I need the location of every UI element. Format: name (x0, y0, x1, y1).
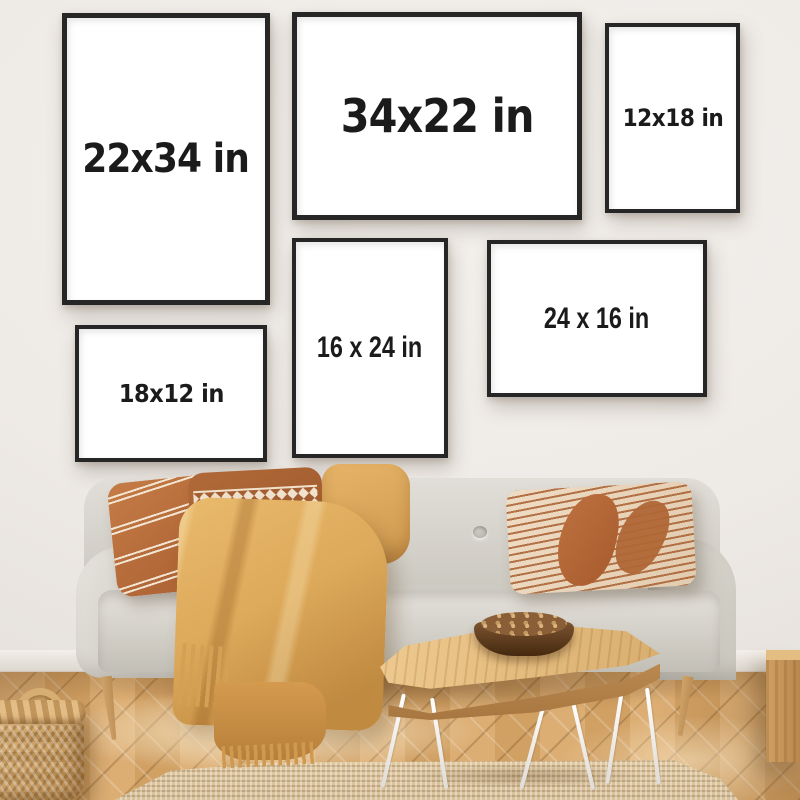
frame-size-label: 34x22 in (341, 89, 534, 143)
frame-16x24: 16 x 24 in (292, 238, 448, 458)
pillow-leaf-motif (552, 488, 625, 591)
basket-rim (0, 700, 86, 724)
wood-block-side-table (766, 650, 800, 762)
frame-size-label: 24 x 16 in (544, 302, 649, 336)
pillow-boho-stripe (505, 481, 696, 595)
frame-size-label: 12x18 in (622, 104, 723, 132)
living-room-frame-size-mockup: 22x34 in 34x22 in 12x18 in 16 x 24 in 24… (0, 0, 800, 800)
frame-22x34: 22x34 in (62, 13, 270, 305)
nuts-in-bowl (481, 612, 567, 636)
frame-18x12: 18x12 in (75, 325, 267, 462)
frame-34x22: 34x22 in (292, 12, 582, 220)
frame-12x18: 12x18 in (605, 23, 740, 213)
frame-24x16: 24 x 16 in (487, 240, 707, 397)
frame-size-label: 16 x 24 in (317, 331, 422, 365)
frame-size-label: 22x34 in (83, 136, 250, 182)
sofa-button-tuft (473, 526, 487, 538)
frame-size-label: 18x12 in (118, 379, 223, 408)
